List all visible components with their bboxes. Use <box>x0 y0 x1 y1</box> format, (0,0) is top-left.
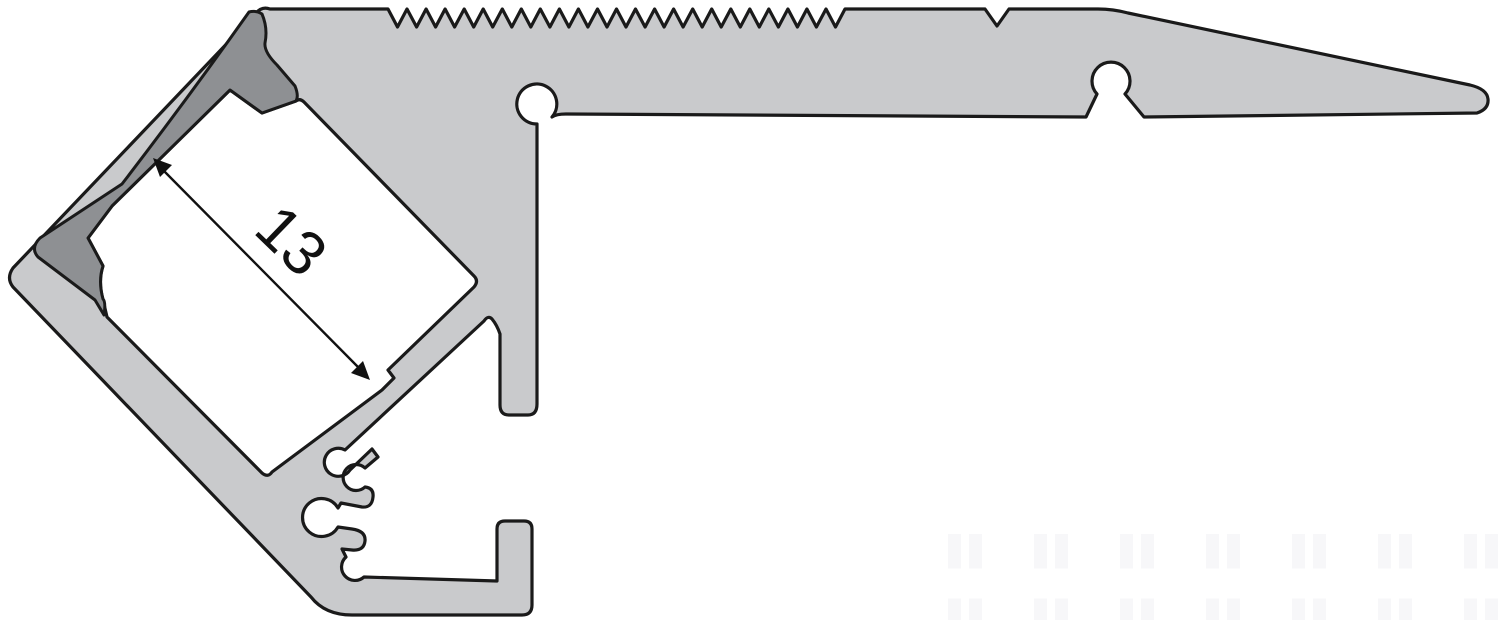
arrowhead-start <box>153 158 172 177</box>
dimension-arrow <box>153 158 370 380</box>
profile-cross-section-diagram: 13 <box>0 0 1500 620</box>
drawing-canvas: 13 <box>0 0 1500 620</box>
dimension-label: 13 <box>242 192 340 290</box>
dimension-line <box>163 170 358 367</box>
profile-body <box>10 8 1489 615</box>
